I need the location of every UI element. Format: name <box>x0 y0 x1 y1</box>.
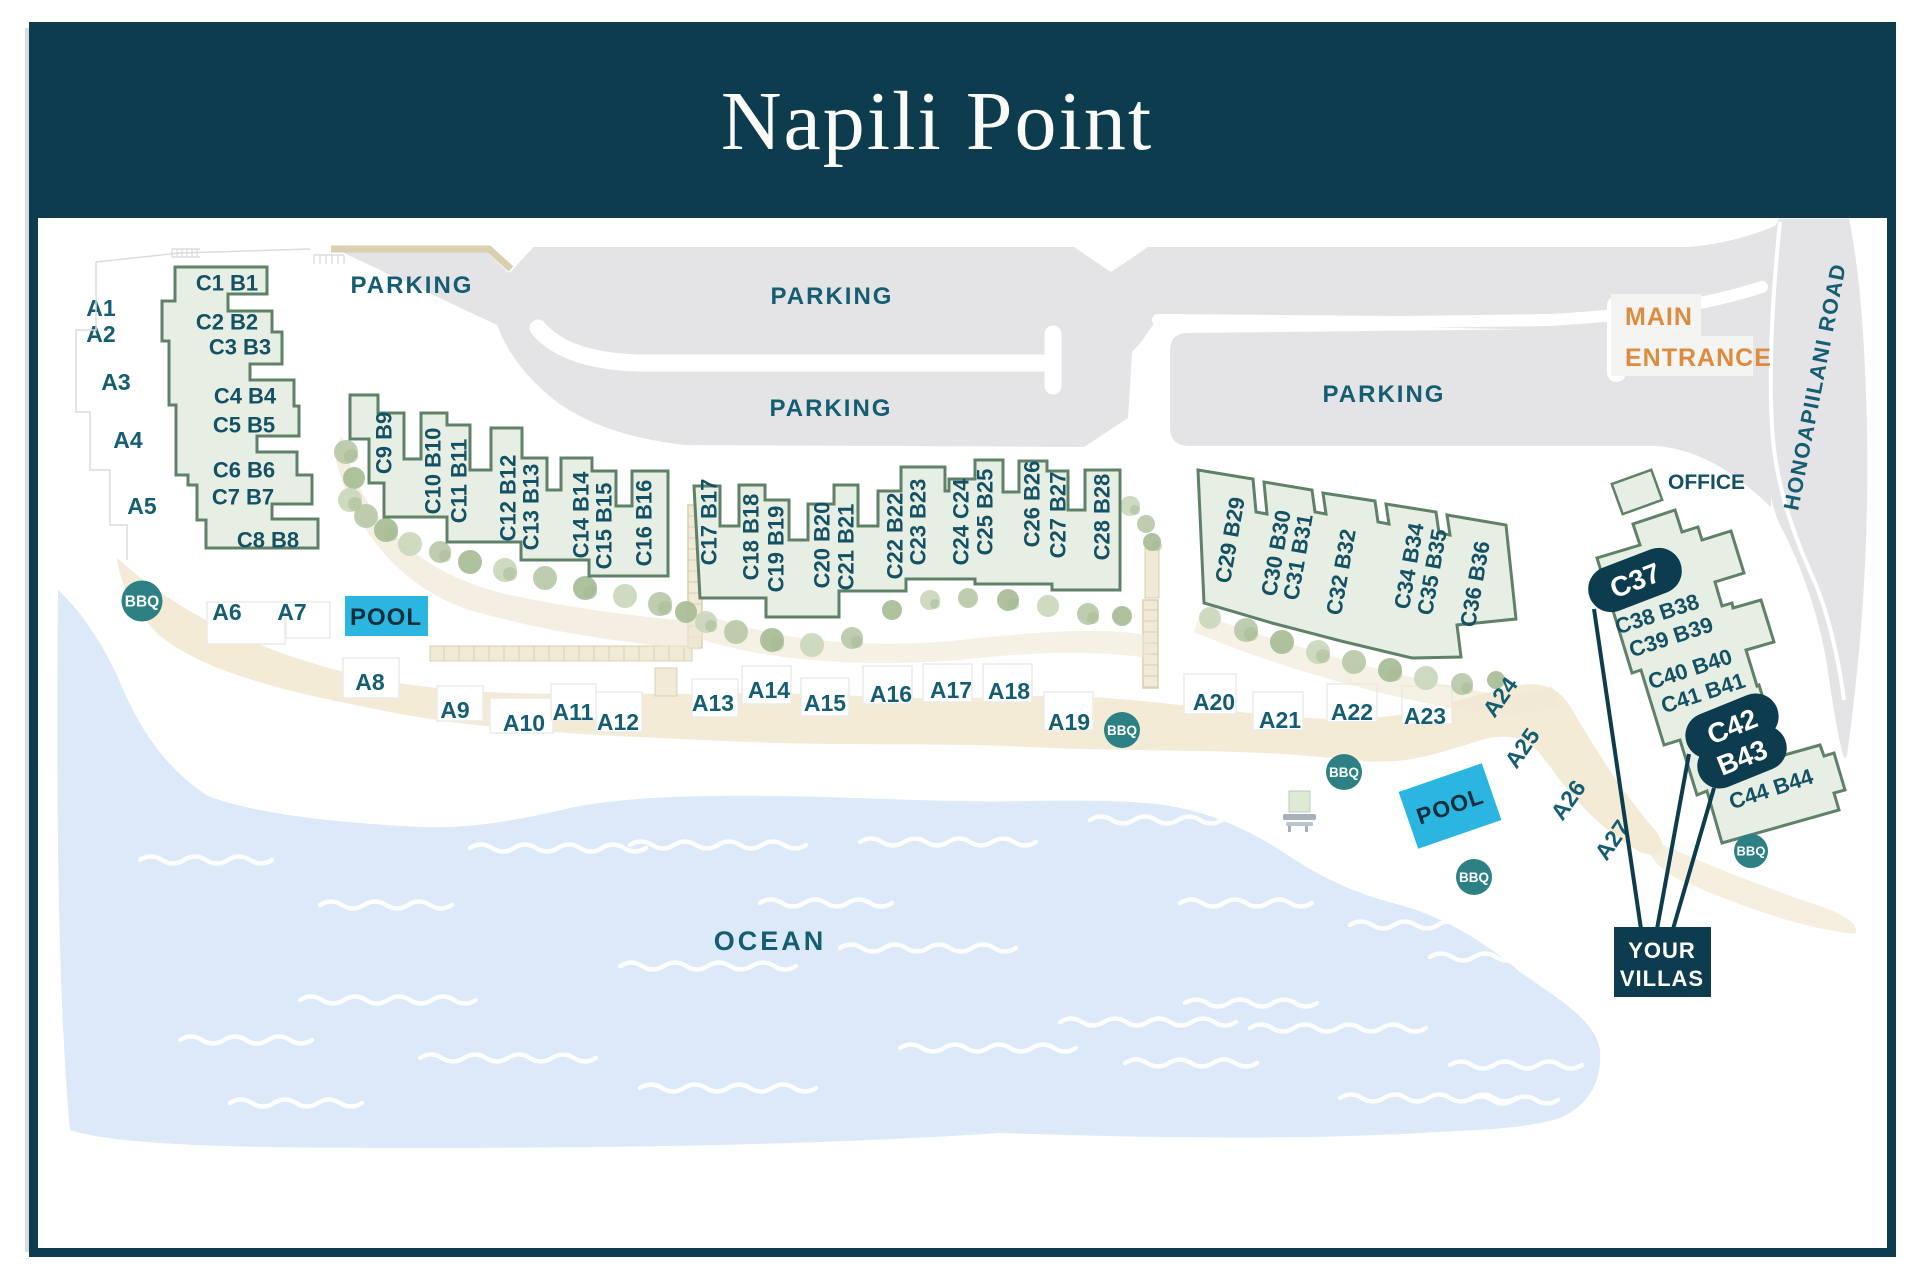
svg-text:PARKING: PARKING <box>351 272 474 299</box>
svg-text:VILLAS: VILLAS <box>1620 966 1704 991</box>
svg-text:A2: A2 <box>86 321 115 347</box>
svg-text:YOUR: YOUR <box>1628 938 1696 963</box>
svg-text:PARKING: PARKING <box>770 395 893 422</box>
svg-text:C7 B7: C7 B7 <box>212 485 274 510</box>
svg-text:A18: A18 <box>988 678 1030 704</box>
svg-text:Napili Point: Napili Point <box>721 75 1153 168</box>
svg-text:C21 B21: C21 B21 <box>834 504 859 591</box>
svg-text:A21: A21 <box>1259 707 1301 733</box>
svg-text:BBQ: BBQ <box>1107 723 1137 738</box>
svg-text:OCEAN: OCEAN <box>714 926 827 956</box>
svg-text:C16 B16: C16 B16 <box>632 480 657 567</box>
svg-text:A20: A20 <box>1193 689 1235 715</box>
svg-text:A12: A12 <box>597 709 639 735</box>
svg-text:PARKING: PARKING <box>771 283 894 310</box>
svg-text:C13 B13: C13 B13 <box>519 464 544 551</box>
svg-text:C3 B3: C3 B3 <box>209 335 271 360</box>
svg-text:A5: A5 <box>127 493 157 519</box>
svg-text:C23 B23: C23 B23 <box>906 479 931 566</box>
svg-text:MAIN: MAIN <box>1625 303 1693 331</box>
svg-text:C12 B12: C12 B12 <box>496 455 521 542</box>
svg-text:A13: A13 <box>692 690 734 716</box>
svg-text:A19: A19 <box>1048 709 1090 735</box>
svg-text:C20 B20: C20 B20 <box>810 502 835 589</box>
svg-text:BBQ: BBQ <box>125 594 159 611</box>
svg-text:C19 B19: C19 B19 <box>764 506 789 593</box>
svg-text:A15: A15 <box>804 690 846 716</box>
svg-text:A16: A16 <box>870 681 912 707</box>
svg-text:C15 B15: C15 B15 <box>592 483 617 570</box>
svg-text:A22: A22 <box>1331 699 1373 725</box>
svg-text:C14 B14: C14 B14 <box>569 471 594 559</box>
svg-text:C28 B28: C28 B28 <box>1090 474 1115 561</box>
svg-text:A1: A1 <box>86 295 116 321</box>
svg-text:A17: A17 <box>930 677 972 703</box>
svg-text:C24 C24: C24 C24 <box>949 478 974 566</box>
svg-text:A7: A7 <box>277 599 306 625</box>
svg-text:A11: A11 <box>553 699 594 725</box>
svg-text:C4 B4: C4 B4 <box>214 384 277 409</box>
svg-text:ENTRANCE: ENTRANCE <box>1625 344 1772 372</box>
svg-text:C17 B17: C17 B17 <box>697 479 722 566</box>
svg-text:BBQ: BBQ <box>1737 844 1766 859</box>
svg-text:C22 B22: C22 B22 <box>883 493 908 580</box>
svg-text:A9: A9 <box>440 697 469 723</box>
svg-text:A8: A8 <box>355 669 385 695</box>
svg-text:C10 B10: C10 B10 <box>421 428 446 515</box>
svg-text:C25 B25: C25 B25 <box>973 469 998 556</box>
svg-text:A14: A14 <box>748 677 790 703</box>
svg-text:C1 B1: C1 B1 <box>196 271 258 296</box>
svg-text:POOL: POOL <box>350 604 422 631</box>
svg-text:C26 B26: C26 B26 <box>1020 461 1045 548</box>
svg-text:A23: A23 <box>1404 703 1446 729</box>
svg-text:C9 B9: C9 B9 <box>372 412 397 474</box>
svg-text:C27 B27: C27 B27 <box>1046 472 1071 559</box>
svg-text:C5 B5: C5 B5 <box>213 413 275 438</box>
svg-text:BBQ: BBQ <box>1329 765 1359 780</box>
svg-text:A4: A4 <box>113 427 143 453</box>
svg-text:C6 B6: C6 B6 <box>213 458 275 483</box>
svg-text:A6: A6 <box>212 599 241 625</box>
svg-text:C2 B2: C2 B2 <box>196 310 258 335</box>
svg-text:C11 B11: C11 B11 <box>447 439 472 523</box>
svg-text:A3: A3 <box>101 369 130 395</box>
svg-text:C18 B18: C18 B18 <box>739 494 764 581</box>
svg-text:PARKING: PARKING <box>1323 381 1446 408</box>
svg-text:BBQ: BBQ <box>1459 870 1489 885</box>
svg-text:C8 B8: C8 B8 <box>237 528 299 553</box>
svg-text:OFFICE: OFFICE <box>1668 471 1745 494</box>
svg-text:A10: A10 <box>503 710 545 736</box>
